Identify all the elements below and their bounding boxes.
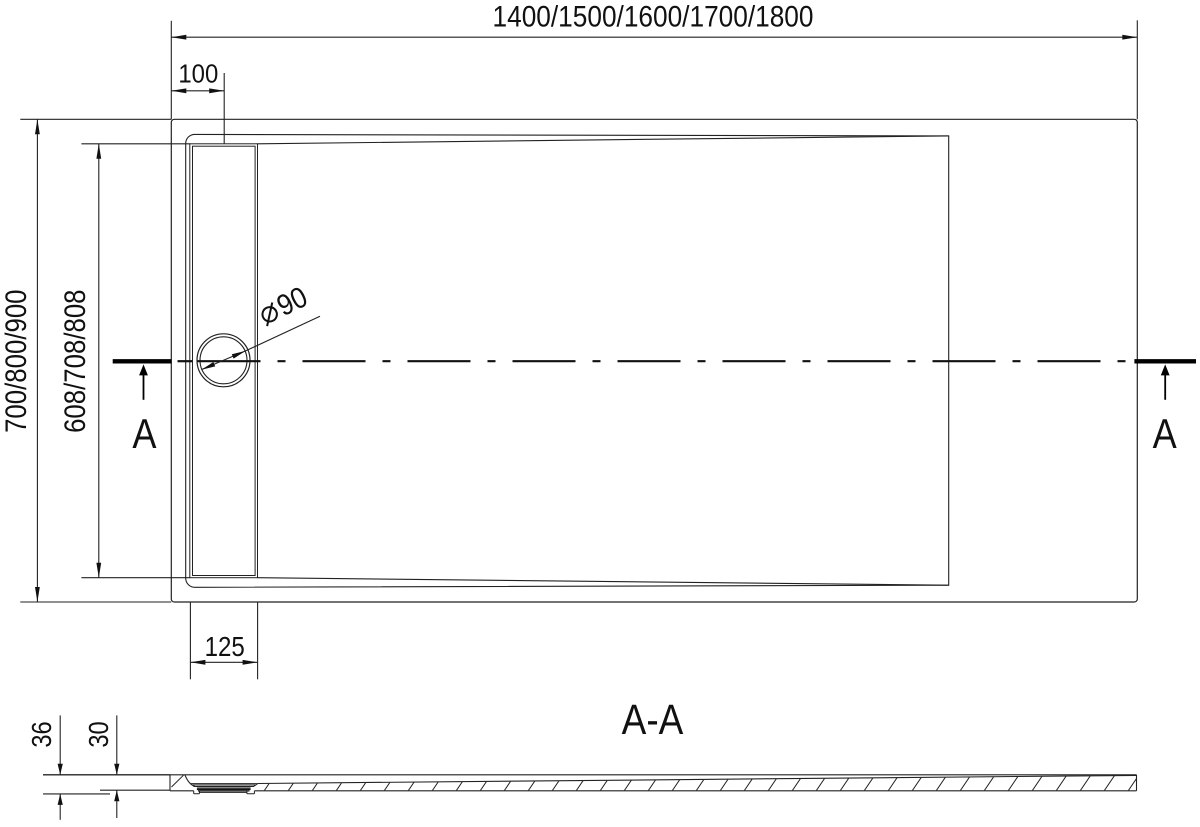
svg-text:A: A: [132, 411, 157, 457]
svg-text:608/708/808: 608/708/808: [58, 289, 91, 432]
svg-text:100: 100: [178, 60, 218, 89]
svg-text:30: 30: [84, 721, 114, 747]
svg-text:A: A: [1153, 411, 1178, 457]
svg-text:125: 125: [205, 630, 245, 662]
svg-text:36: 36: [27, 721, 57, 747]
svg-text:1400/1500/1600/1700/1800: 1400/1500/1600/1700/1800: [493, 0, 814, 33]
svg-text:A-A: A-A: [622, 696, 684, 743]
svg-text:700/800/900: 700/800/900: [0, 289, 33, 432]
